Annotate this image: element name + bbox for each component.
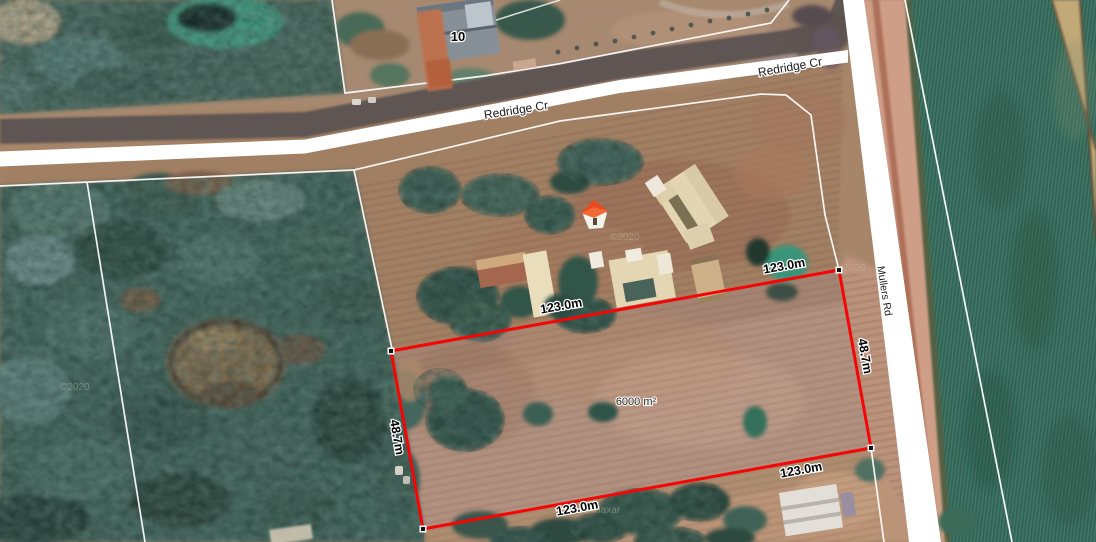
svg-text:©2020: ©2020 (60, 382, 90, 393)
svg-text:©2020: ©2020 (610, 232, 640, 243)
svg-text:2020: 2020 (843, 263, 866, 274)
svg-text:10: 10 (451, 29, 465, 44)
svg-text:6000 m²: 6000 m² (616, 396, 657, 408)
